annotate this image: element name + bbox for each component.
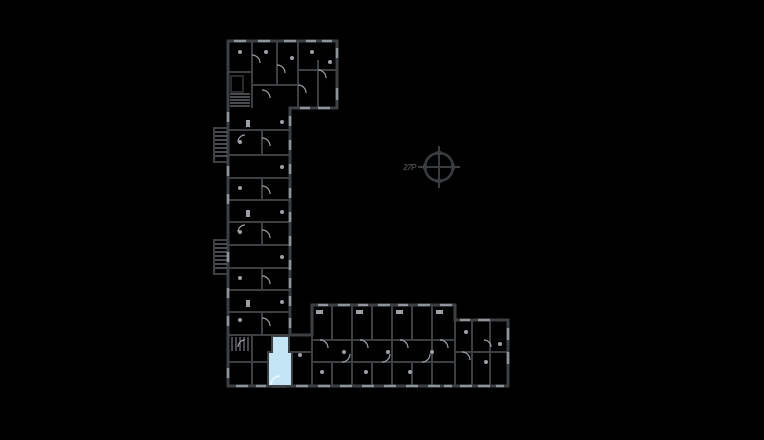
floor-plan-canvas: 27P <box>0 0 764 440</box>
highlighted-unit[interactable] <box>268 336 292 386</box>
compass-icon <box>418 146 460 188</box>
stair-protrusion-lower <box>214 240 228 274</box>
interior-walls-top-wing <box>228 41 337 108</box>
highlighted-unit-footprint[interactable] <box>268 336 292 386</box>
fixture-marks <box>238 50 502 374</box>
screenshot-root: 27P <box>0 0 764 440</box>
door-swing-arcs <box>238 55 491 362</box>
compass-label: 27P <box>402 163 417 172</box>
elevator-shaft <box>231 76 243 92</box>
interior-walls-vertical-wing <box>228 130 290 335</box>
building-walls <box>214 41 508 386</box>
stair-protrusion-upper <box>214 128 228 162</box>
